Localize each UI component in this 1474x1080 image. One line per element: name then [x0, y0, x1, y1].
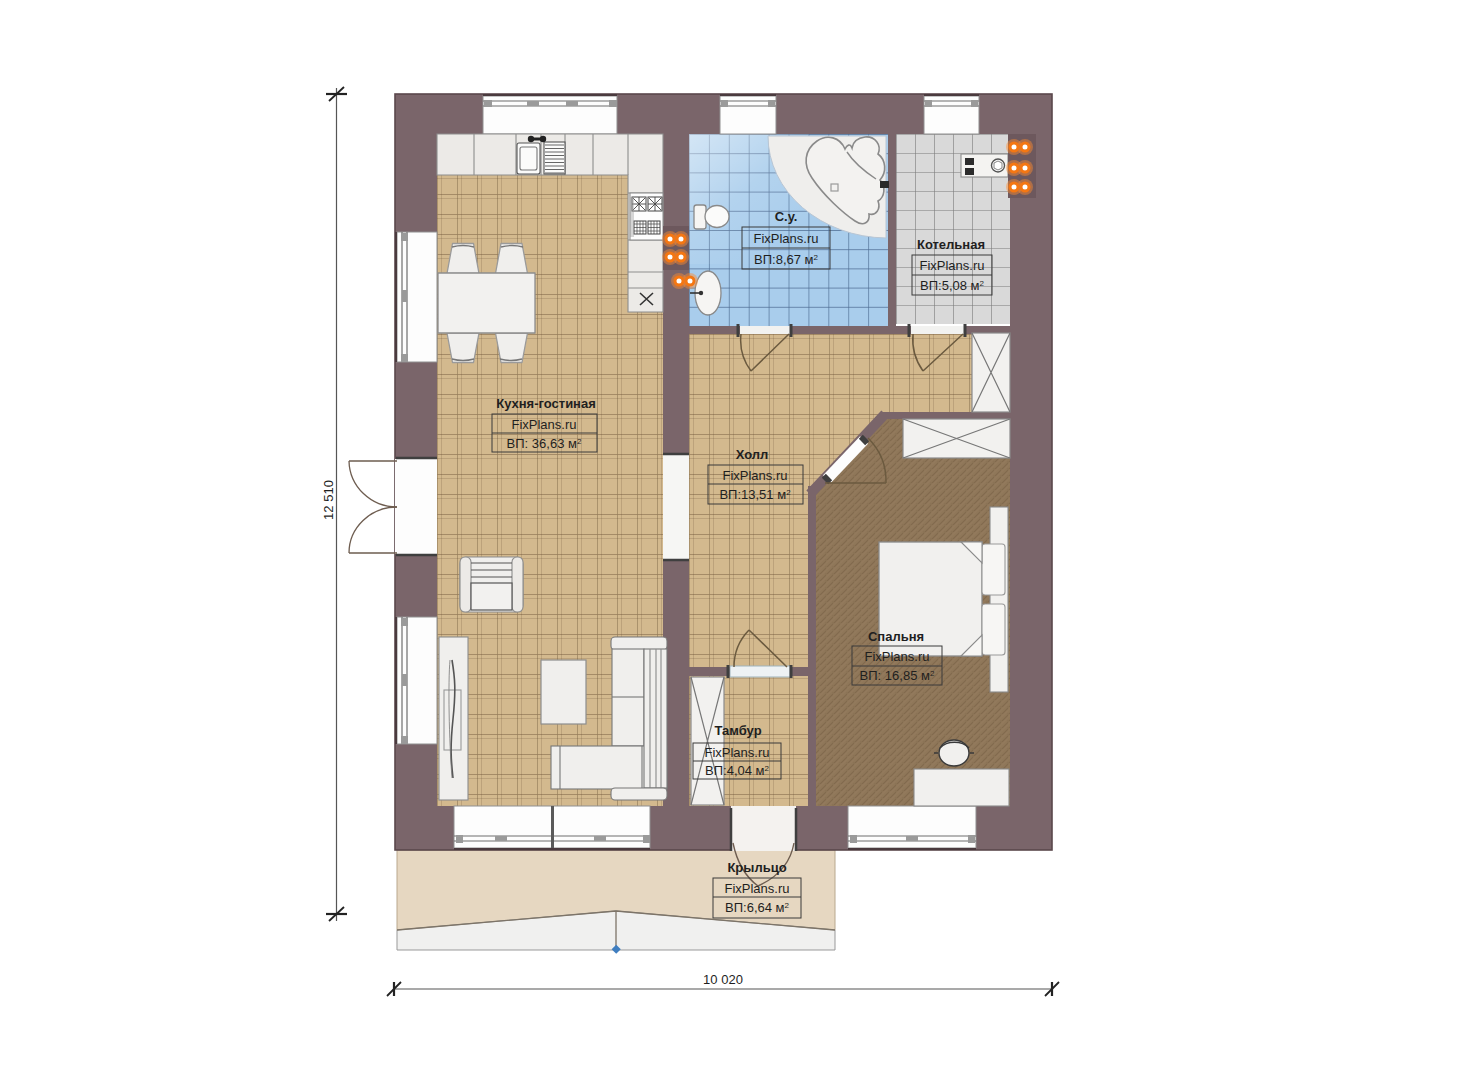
svg-text:Котельная: Котельная — [917, 237, 985, 252]
svg-text:ВП:5,08 м2: ВП:5,08 м2 — [920, 278, 984, 293]
svg-text:ВП:6,64 м2: ВП:6,64 м2 — [725, 900, 789, 915]
svg-text:ВП:8,67 м2: ВП:8,67 м2 — [754, 252, 818, 267]
svg-text:FixPlans.ru: FixPlans.ru — [864, 649, 929, 664]
svg-text:Крыльцо: Крыльцо — [727, 860, 786, 875]
svg-text:С.у.: С.у. — [775, 209, 798, 224]
svg-text:FixPlans.ru: FixPlans.ru — [919, 258, 984, 273]
svg-text:FixPlans.ru: FixPlans.ru — [724, 881, 789, 896]
svg-text:12 510: 12 510 — [321, 480, 336, 520]
svg-text:ВП:4,04 м2: ВП:4,04 м2 — [705, 763, 769, 778]
svg-text:10 020: 10 020 — [703, 972, 743, 987]
svg-text:FixPlans.ru: FixPlans.ru — [704, 745, 769, 760]
svg-text:ВП:13,51 м2: ВП:13,51 м2 — [719, 487, 791, 502]
svg-text:Холл: Холл — [736, 447, 769, 462]
svg-text:ВП: 16,85 м2: ВП: 16,85 м2 — [860, 668, 935, 683]
svg-text:ВП: 36,63 м2: ВП: 36,63 м2 — [507, 436, 582, 451]
svg-text:Тамбур: Тамбур — [714, 723, 761, 738]
svg-text:Кухня-гостиная: Кухня-гостиная — [496, 396, 596, 411]
svg-text:Спальня: Спальня — [868, 629, 924, 644]
svg-text:FixPlans.ru: FixPlans.ru — [722, 468, 787, 483]
svg-text:FixPlans.ru: FixPlans.ru — [753, 231, 818, 246]
svg-text:FixPlans.ru: FixPlans.ru — [511, 417, 576, 432]
